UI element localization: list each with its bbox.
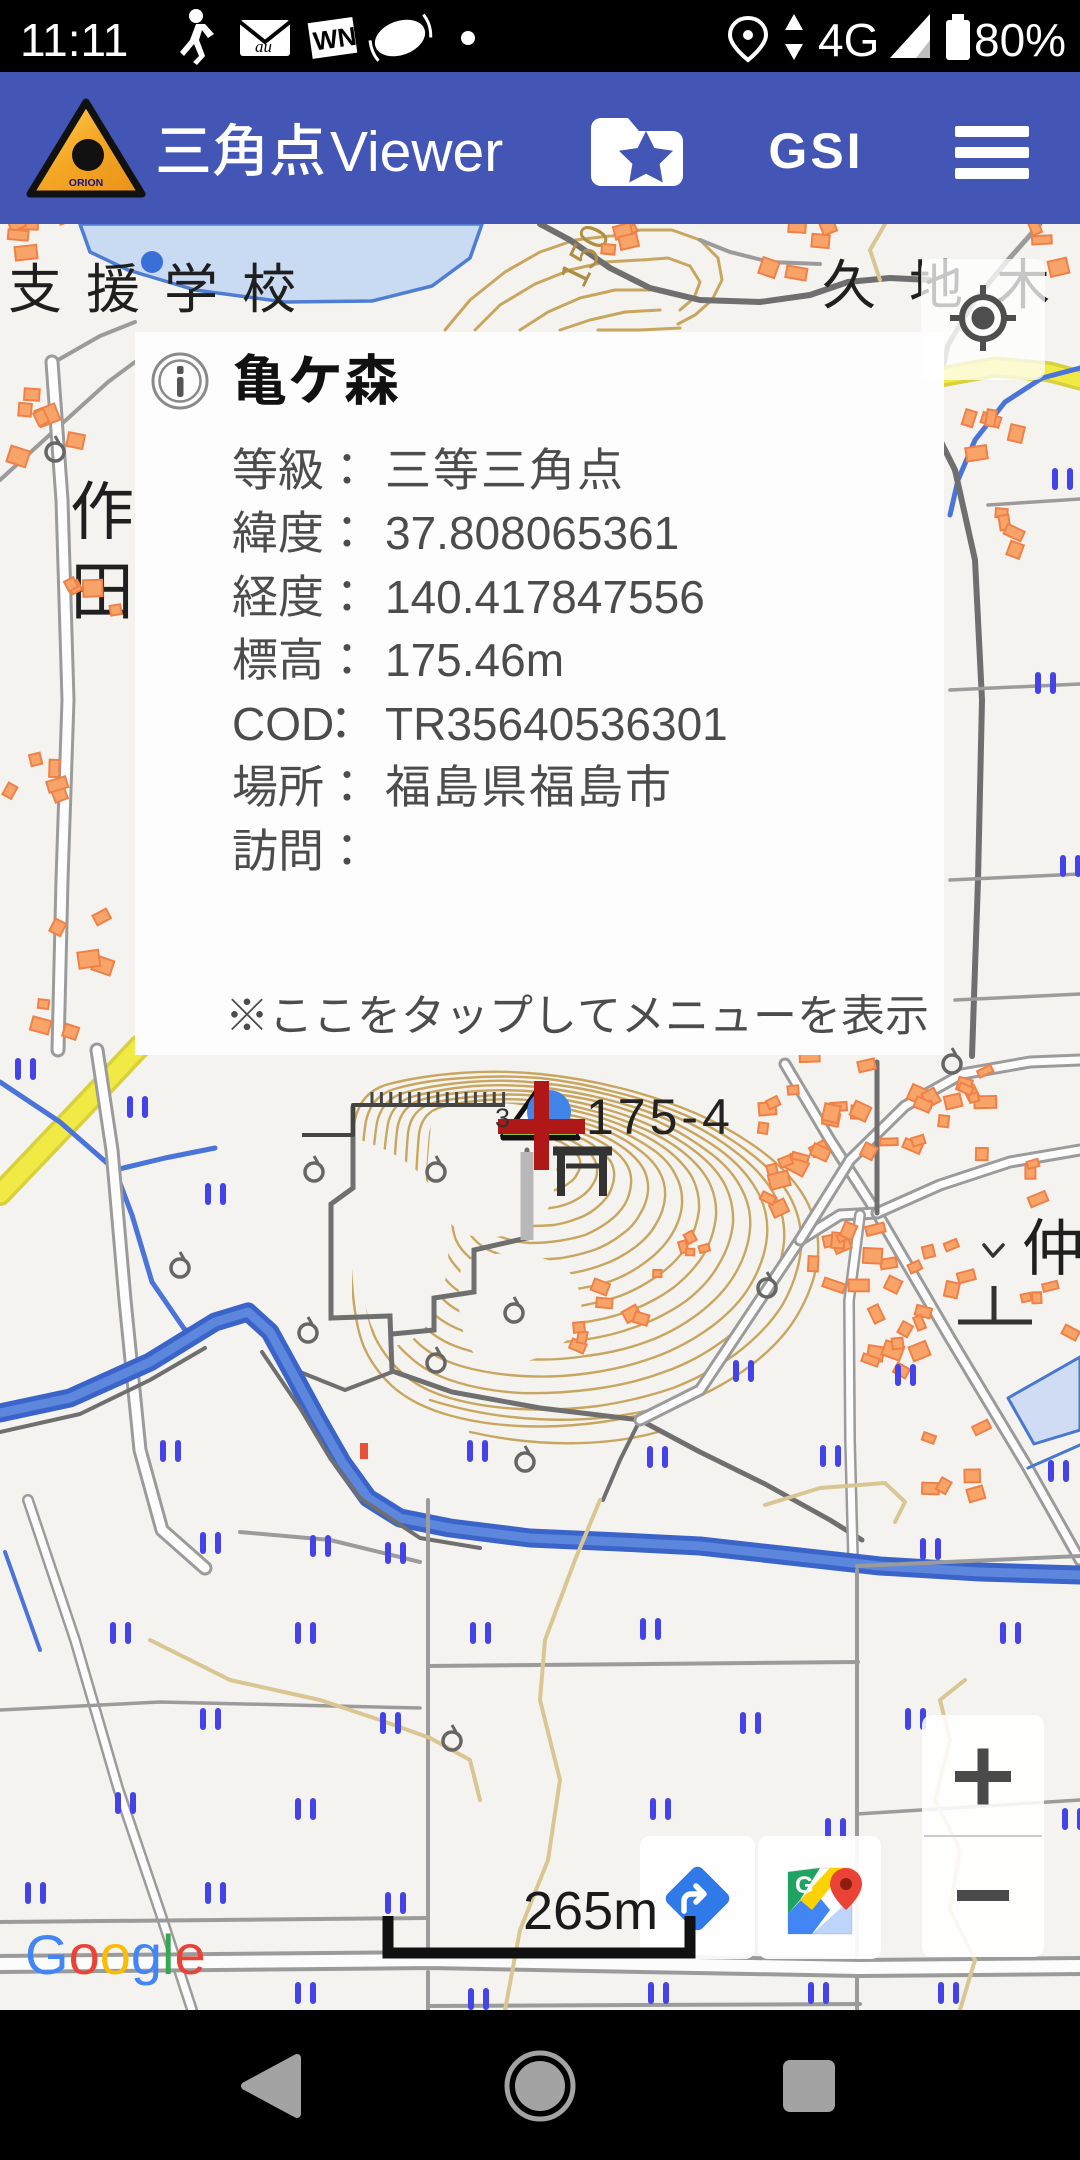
svg-text:175.46m: 175.46m (385, 634, 564, 686)
svg-text:140.417847556: 140.417847556 (385, 571, 705, 623)
svg-text:Viewer: Viewer (330, 120, 503, 184)
svg-text:175-4: 175-4 (586, 1089, 734, 1145)
svg-text:WN: WN (311, 21, 358, 57)
svg-text:80%: 80% (974, 14, 1066, 66)
svg-text:TR35640536301: TR35640536301 (385, 698, 728, 750)
svg-text:4G: 4G (818, 14, 879, 66)
svg-text:GSI: GSI (768, 123, 863, 179)
svg-text:au: au (255, 37, 272, 56)
svg-text:Google: Google (25, 1923, 206, 1986)
svg-text:ORION: ORION (69, 177, 103, 189)
svg-text:265m: 265m (523, 1881, 658, 1941)
svg-text:3: 3 (495, 1103, 510, 1133)
svg-text:11:11: 11:11 (20, 14, 128, 66)
svg-text:G: G (795, 1872, 814, 1899)
svg-text:37.808065361: 37.808065361 (385, 507, 679, 559)
svg-text:COD: COD (232, 698, 334, 750)
